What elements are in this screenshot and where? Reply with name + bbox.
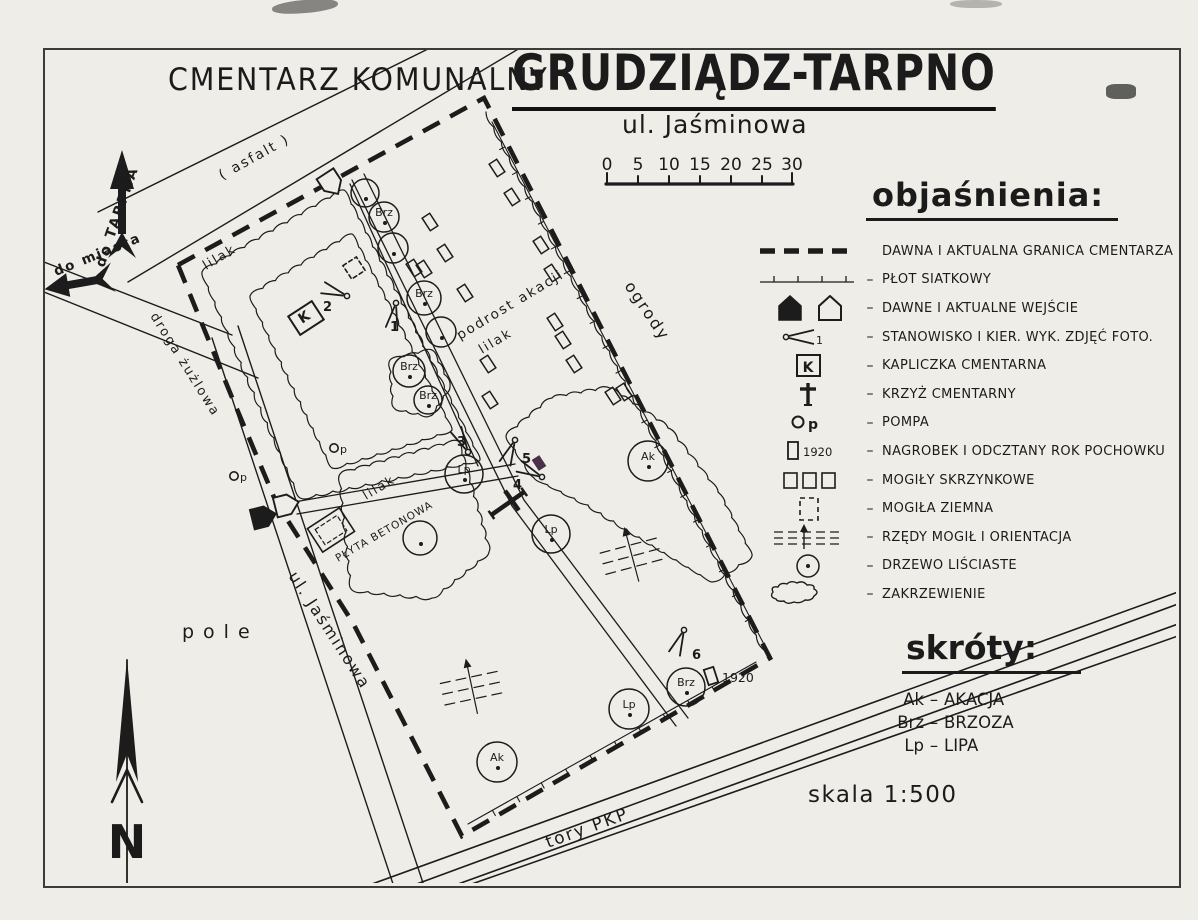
legend-item-label: DAWNE I AKTUALNE WEJŚCIE <box>882 301 1078 316</box>
legend-dash: – <box>858 472 882 488</box>
photo-station-number: 3 <box>457 435 466 450</box>
grave-rows-symbol <box>595 519 667 589</box>
map-scale-text: skala 1:500 <box>808 782 958 808</box>
label-pole: pole <box>182 621 259 643</box>
shrub-outlines <box>202 112 764 650</box>
photo-station-number: 6 <box>692 648 701 663</box>
chapel-icon: K <box>758 353 858 379</box>
legend: objaśnienia: – DAWNA I AKTUALNA GRANICA … <box>758 176 1184 609</box>
tree-label: Brz <box>375 206 393 219</box>
legend-dash: – <box>858 586 882 602</box>
boundary-dash-icon <box>758 238 858 264</box>
tree: Brz <box>407 281 441 315</box>
legend-dash: – <box>858 329 882 345</box>
legend-dash: – <box>858 272 882 288</box>
legend-item-chapel: K – KAPLICZKA CMENTARNA <box>758 351 1184 380</box>
tree-dot <box>685 691 689 695</box>
abbr-name: BRZOZA <box>944 711 1081 734</box>
legend-dash: – <box>858 558 882 574</box>
tree-label: Lp <box>457 463 470 476</box>
tree-dot <box>496 766 500 770</box>
legend-item-label: MOGIŁY SKRZYNKOWE <box>882 473 1035 488</box>
north-arrow: N <box>108 658 147 905</box>
cemetery-boundary <box>178 98 770 836</box>
legend-item-tree: – DRZEWO LIŚCIASTE <box>758 552 1184 581</box>
pump-icon: p <box>758 410 858 436</box>
entrance-house-icons <box>758 295 858 321</box>
fence-lines <box>468 122 768 824</box>
gravestone <box>480 355 496 372</box>
scale-tick: 0 <box>602 155 613 175</box>
tree-dot <box>423 302 427 306</box>
tree-label: Ak <box>641 450 656 463</box>
photo-station-dot <box>539 474 544 479</box>
abbreviations-title: skróty: <box>902 628 1081 674</box>
legend-item-fence: – PŁOT SIATKOWY <box>758 266 1184 295</box>
pump-letter: p <box>340 443 347 456</box>
gravestone <box>489 159 505 176</box>
pump: p <box>330 443 347 456</box>
title-cemetery-type: CMENTARZ KOMUNALNY <box>168 62 549 98</box>
gravestone <box>437 244 453 261</box>
gravestone <box>566 355 582 372</box>
legend-item-label: RZĘDY MOGIŁ I ORIENTACJA <box>882 530 1072 545</box>
legend-item-pump: p – POMPA <box>758 409 1184 438</box>
grave-rows-icon <box>758 524 858 550</box>
tree-label: Brz <box>419 389 437 402</box>
abbreviation-row: Brz – BRZOZA <box>880 711 1081 734</box>
abbr-dash: – <box>924 734 944 757</box>
tree-dot <box>440 336 444 340</box>
tree: Ak <box>628 441 668 481</box>
tree <box>351 179 379 207</box>
gravestone <box>547 313 563 330</box>
label-tory-pkp: tory PKP <box>543 804 632 853</box>
svg-text:p: p <box>808 417 818 433</box>
tree-label: Lp <box>544 523 557 536</box>
abbreviation-row: Ak – AKACJA <box>880 688 1081 711</box>
legend-dash: – <box>858 443 882 459</box>
photo-station-number: 1 <box>390 320 399 335</box>
box-graves-icon <box>758 467 858 493</box>
entrance-current-north <box>317 168 347 199</box>
tree-dot <box>383 221 387 225</box>
abbr-name: AKACJA <box>944 688 1081 711</box>
scale-tick: 25 <box>751 155 773 175</box>
photo-station-dot <box>681 627 686 632</box>
gravestone <box>457 284 473 301</box>
abbr: Ak <box>880 688 924 711</box>
tree-dot <box>408 375 412 379</box>
gravestone-year: 1920 <box>722 670 754 685</box>
abbreviations: skróty: Ak – AKACJA Brz – BRZOZA Lp – LI… <box>880 628 1081 757</box>
gravestone <box>416 260 432 277</box>
legend-item-cross: – KRZYŻ CMENTARNY <box>758 380 1184 409</box>
gravestone <box>605 387 621 404</box>
tree-circle <box>351 179 379 207</box>
page-title: GRUDZIĄDZ-TARPNO <box>512 44 1102 111</box>
fence-icon <box>758 267 858 293</box>
scanned-map-page: K 1920 BrzBrzBrzBrzA <box>0 0 1198 920</box>
legend-item-label: POMPA <box>882 415 929 430</box>
pump: p <box>230 471 247 484</box>
shrub-outline <box>506 387 752 582</box>
tree-label: Brz <box>677 676 695 689</box>
scale-tick: 30 <box>781 155 803 175</box>
svg-text:K: K <box>803 360 815 376</box>
legend-item-label: DRZEWO LIŚCIASTE <box>882 558 1017 573</box>
legend-item-grave-rows: – RZĘDY MOGIŁ I ORIENTACJA <box>758 523 1184 552</box>
legend-dash: – <box>858 415 882 431</box>
pump-circle <box>230 472 238 480</box>
tree <box>403 521 437 555</box>
legend-item-box-graves: – MOGIŁY SKRZYNKOWE <box>758 466 1184 495</box>
tree-dot <box>463 478 467 482</box>
label-asfalt: ( asfalt ) <box>216 131 292 183</box>
tree: Brz <box>393 355 425 387</box>
photo-station-number: 4 <box>513 478 522 493</box>
legend-item-entrances: – DAWNE I AKTUALNE WEJŚCIE <box>758 294 1184 323</box>
tree: Ak <box>477 742 517 782</box>
legend-title: objaśnienia: <box>866 176 1118 221</box>
alley-paths <box>294 174 688 726</box>
legend-item-label: KAPLICZKA CMENTARNA <box>882 358 1046 373</box>
photo-station-icon: 1 <box>758 324 858 350</box>
legend-dash: – <box>858 358 882 374</box>
tree-dot <box>419 542 423 546</box>
gravestone-1920: 1920 <box>704 667 754 685</box>
scale-tick: 10 <box>658 155 680 175</box>
legend-item-label: DAWNA I AKTUALNA GRANICA CMENTARZA <box>882 244 1173 259</box>
photo-station-dot <box>465 449 470 454</box>
legend-item-photo-station: 1 – STANOWISKO I KIER. WYK. ZDJĘĆ FOTO. <box>758 323 1184 352</box>
label-do-miasta: do miasta <box>52 230 144 280</box>
tree-label: Brz <box>415 287 433 300</box>
tree-dot <box>392 252 396 256</box>
scan-smudge <box>1106 84 1136 99</box>
tree: Lp <box>609 689 649 729</box>
tree-dot <box>628 713 632 717</box>
legend-item-gravestone: 1920 – NAGROBEK I ODCZTANY ROK POCHOWKU <box>758 437 1184 466</box>
legend-item-boundary: – DAWNA I AKTUALNA GRANICA CMENTARZA <box>758 237 1184 266</box>
tree-dot <box>364 197 368 201</box>
tree-circle <box>403 521 437 555</box>
legend-item-earth-grave: – MOGIŁA ZIEMNA <box>758 494 1184 523</box>
svg-text:1: 1 <box>816 334 823 347</box>
svg-text:1920: 1920 <box>803 445 832 459</box>
legend-item-label: ZAKRZEWIENIE <box>882 587 986 602</box>
title-street: ul. Jaśminowa <box>622 110 808 139</box>
earth-grave-icon <box>758 496 858 522</box>
pump-letter: p <box>240 471 247 484</box>
tree-label: Ak <box>490 751 505 764</box>
north-letter: N <box>108 815 147 869</box>
abbr: Lp <box>880 734 924 757</box>
tree <box>378 233 408 263</box>
tree-dot <box>550 538 554 542</box>
label-lilak-old: lilak <box>200 242 239 274</box>
scale-tick: 5 <box>633 155 644 175</box>
photo-station-dot <box>393 300 398 305</box>
photo-station-number: 5 <box>522 452 531 467</box>
fence-line <box>492 122 768 652</box>
cemetery-cross <box>485 482 532 525</box>
abbreviations-list: Ak – AKACJA Brz – BRZOZA Lp – LIPA <box>880 688 1081 757</box>
legend-dash: – <box>858 501 882 517</box>
legend-item-label: STANOWISKO I KIER. WYK. ZDJĘĆ FOTO. <box>882 330 1153 345</box>
abbr-name: LIPA <box>944 734 1081 757</box>
gravestone <box>406 259 422 276</box>
chapel-kapliczka: K <box>288 301 323 335</box>
tree-label: Brz <box>400 360 418 373</box>
gravestone <box>555 331 571 348</box>
label-ogrody: ogrody <box>621 278 675 345</box>
photo-station: 2 <box>321 282 349 315</box>
cross-icon <box>758 381 858 407</box>
abbreviation-row: Lp – LIPA <box>880 734 1081 757</box>
tree-label: Lp <box>622 698 635 711</box>
grave-rows-symbol <box>436 652 506 719</box>
scale-tick: 15 <box>689 155 711 175</box>
tree: Brz <box>369 202 399 232</box>
tree-icon <box>758 553 858 579</box>
photo-station: 6 <box>669 627 701 663</box>
tree: Lp <box>445 455 483 493</box>
legend-item-shrubs: – ZAKRZEWIENIE <box>758 580 1184 609</box>
legend-item-label: PŁOT SIATKOWY <box>882 272 991 287</box>
gravestone-icon: 1920 <box>758 438 858 464</box>
legend-dash: – <box>858 529 882 545</box>
scale-tick: 20 <box>720 155 742 175</box>
photo-station-dot <box>344 293 349 298</box>
tree-circle <box>378 233 408 263</box>
abbr: Brz <box>880 711 924 734</box>
shrubs-icon <box>758 581 858 607</box>
tree-dot <box>647 465 651 469</box>
abbr-dash: – <box>924 688 944 711</box>
gravestone <box>422 213 438 230</box>
photo-station-dot <box>512 437 517 442</box>
page-title-text: GRUDZIĄDZ-TARPNO <box>512 44 996 111</box>
legend-list: – DAWNA I AKTUALNA GRANICA CMENTARZA – P… <box>758 237 1184 609</box>
legend-item-label: MOGIŁA ZIEMNA <box>882 501 993 516</box>
earth-grave-square <box>343 257 365 279</box>
legend-dash: – <box>858 300 882 316</box>
photo-station-number: 2 <box>323 300 332 315</box>
tree: Brz <box>667 668 705 706</box>
photo-station: 1 <box>386 300 399 335</box>
tree-dot <box>427 404 431 408</box>
gravestone <box>533 236 549 253</box>
pump-circle <box>330 444 338 452</box>
gravestone <box>504 188 520 205</box>
gravestone <box>482 391 498 408</box>
legend-dash: – <box>858 386 882 402</box>
legend-item-label: NAGROBEK I ODCZTANY ROK POCHOWKU <box>882 444 1165 459</box>
scan-smudge <box>950 0 1002 8</box>
tree: Lp <box>532 515 570 553</box>
trees: BrzBrzBrzBrzAkLpLpLpBrzAk <box>351 179 705 782</box>
gravestone-purple <box>532 456 545 470</box>
legend-item-label: KRZYŻ CMENTARNY <box>882 387 1016 402</box>
abbr-dash: – <box>924 711 944 734</box>
